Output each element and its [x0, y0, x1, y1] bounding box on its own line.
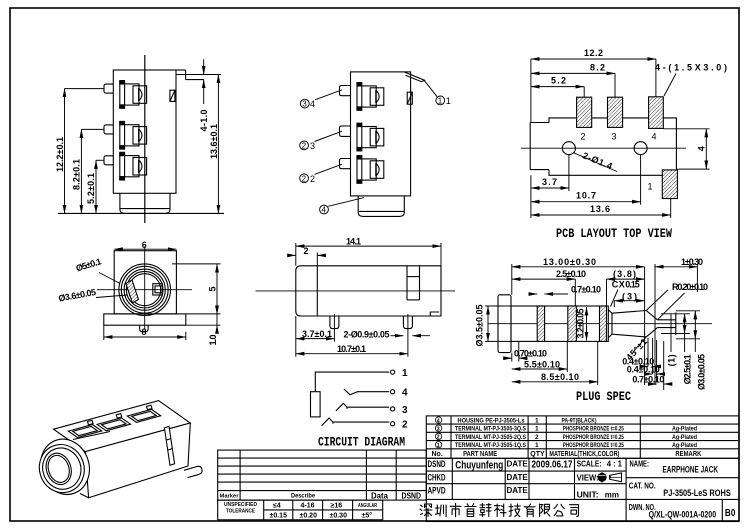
svg-text:1: 1: [402, 368, 408, 379]
svg-text:±0.30: ±0.30: [330, 512, 348, 519]
svg-text:MATERIAL(THICK,COLOR): MATERIAL(THICK,COLOR): [549, 451, 619, 458]
svg-text:1: 1: [437, 443, 440, 449]
svg-text:4: 4: [697, 146, 707, 151]
svg-text:CAT. NO.: CAT. NO.: [629, 480, 656, 490]
svg-text:(3.8): (3.8): [613, 269, 636, 279]
svg-text:2: 2: [535, 434, 539, 441]
svg-text:4: 4: [322, 206, 327, 215]
svg-text:Ø2.5±0.1: Ø2.5±0.1: [683, 354, 693, 384]
svg-text:(1): (1): [667, 354, 677, 366]
svg-text:PLUG SPEC: PLUG SPEC: [576, 389, 631, 404]
svg-text:EARPHONE JACK: EARPHONE JACK: [663, 465, 719, 475]
svg-text:UNSPECIFIED: UNSPECIFIED: [224, 502, 257, 508]
svg-text:0.7±0.10: 0.7±0.10: [632, 374, 664, 384]
svg-text:13.6±0.1: 13.6±0.1: [209, 124, 219, 159]
svg-text:13.00±0.30: 13.00±0.30: [543, 257, 596, 267]
svg-text:Describe: Describe: [291, 493, 315, 500]
svg-text:3: 3: [612, 132, 617, 142]
svg-text:DSND: DSND: [402, 490, 422, 500]
svg-text:2-Ø0.9±0.05: 2-Ø0.9±0.05: [344, 329, 390, 339]
svg-text:±5°: ±5°: [362, 511, 373, 519]
svg-text:Q/XL-QW-001A-0200: Q/XL-QW-001A-0200: [649, 510, 717, 520]
svg-text:≤4: ≤4: [273, 503, 281, 510]
svg-text:3: 3: [402, 405, 408, 416]
svg-text:5.2±0.1: 5.2±0.1: [86, 173, 96, 204]
svg-text:Marker: Marker: [220, 494, 240, 500]
svg-text:±0.15: ±0.15: [270, 512, 288, 519]
svg-text:DATE: DATE: [507, 473, 529, 482]
svg-text:2: 2: [581, 132, 586, 142]
svg-text:PCB LAYOUT TOP VIEW: PCB LAYOUT TOP VIEW: [556, 226, 672, 241]
svg-text:10.7±0.1: 10.7±0.1: [337, 344, 366, 354]
svg-text:HOUSING PE-PJ-3505-Ls: HOUSING PE-PJ-3505-Ls: [458, 418, 525, 425]
svg-text:TERMINAL MT-PJ-3505-2Q.S: TERMINAL MT-PJ-3505-2Q.S: [455, 434, 527, 441]
svg-text:C X 0.15: C X 0.15: [612, 280, 640, 290]
svg-text:Ø3.6±0.05: Ø3.6±0.05: [58, 287, 97, 303]
svg-text:8.5±0.10: 8.5±0.10: [541, 372, 579, 382]
svg-text:Ag-Plated: Ag-Plated: [672, 442, 697, 449]
svg-text:1: 1: [535, 418, 539, 425]
svg-text:0.7±0.10: 0.7±0.10: [571, 284, 601, 294]
svg-text:1: 1: [535, 426, 539, 433]
svg-text:5.5±0.10: 5.5±0.10: [524, 359, 560, 369]
svg-text:DSND: DSND: [428, 459, 446, 469]
svg-text:SCALE:: SCALE:: [577, 460, 602, 469]
svg-text:8.2±0.1: 8.2±0.1: [72, 159, 82, 190]
svg-text:4: 4: [402, 388, 408, 399]
svg-text:No.: No.: [432, 451, 443, 458]
svg-text:UNIT:: UNIT:: [577, 490, 599, 499]
svg-text:1: 1: [438, 96, 443, 105]
svg-text:4: 4: [437, 418, 441, 424]
svg-text:3: 3: [437, 427, 440, 433]
svg-text:Ag-Plated: Ag-Plated: [672, 426, 697, 433]
svg-text:0.4±0.10: 0.4±0.10: [627, 364, 660, 374]
svg-text:5.2: 5.2: [551, 76, 566, 86]
svg-text:3.7: 3.7: [542, 177, 557, 187]
svg-text:Ø3.0±0.05: Ø3.0±0.05: [697, 354, 707, 390]
svg-text:REMARK: REMARK: [675, 451, 701, 458]
svg-text:8.2: 8.2: [590, 62, 605, 72]
svg-text:4-16: 4-16: [301, 503, 315, 510]
svg-text:13.6: 13.6: [590, 204, 610, 214]
svg-text:Ø5±0.1: Ø5±0.1: [75, 256, 103, 273]
svg-text:CIRCUIT DIAGRAM: CIRCUIT DIAGRAM: [318, 435, 405, 450]
svg-text:14.1: 14.1: [346, 236, 361, 246]
svg-text:10.7: 10.7: [576, 191, 596, 201]
svg-text:2.5±0.10: 2.5±0.10: [556, 269, 586, 279]
svg-text:2: 2: [304, 246, 309, 256]
svg-text:2: 2: [302, 141, 307, 150]
svg-text:4: 4: [310, 99, 315, 109]
svg-text:6: 6: [142, 240, 147, 250]
svg-text:PHOSPHOR BRONZE t=0.25: PHOSPHOR BRONZE t=0.25: [563, 426, 624, 433]
svg-text:2: 2: [402, 420, 408, 431]
svg-text:3: 3: [310, 141, 315, 151]
svg-text:VIEW:: VIEW:: [577, 474, 599, 483]
svg-text:4-(1.5X3.0): 4-(1.5X3.0): [655, 63, 727, 73]
svg-text:PHOSPHOR BRONZE t=0.25: PHOSPHOR BRONZE t=0.25: [563, 442, 624, 449]
svg-text:2009.06.17: 2009.06.17: [532, 459, 573, 471]
svg-text:1.0: 1.0: [208, 335, 218, 346]
svg-text:PJ-3505-LeS ROHS: PJ-3505-LeS ROHS: [663, 488, 731, 498]
svg-text:4: 4: [652, 132, 657, 142]
svg-text:≥16: ≥16: [331, 503, 343, 510]
svg-text:TERMINAL MT-PJ-3505-3Q.S: TERMINAL MT-PJ-3505-3Q.S: [455, 426, 527, 433]
svg-text:4 : 1: 4 : 1: [607, 460, 623, 469]
svg-text:0.70±0.10: 0.70±0.10: [514, 348, 547, 358]
svg-text:1: 1: [446, 96, 451, 106]
svg-text:2: 2: [302, 174, 307, 183]
svg-text:(3): (3): [622, 291, 637, 301]
svg-text:TOLERANCE: TOLERANCE: [226, 509, 255, 515]
svg-text:NAME:: NAME:: [630, 458, 650, 468]
svg-text:2: 2: [437, 435, 440, 441]
svg-text:12.2±0.1: 12.2±0.1: [55, 137, 65, 172]
svg-text:mm: mm: [605, 490, 619, 499]
svg-text:DATE: DATE: [507, 460, 529, 469]
svg-text:4-1.0: 4-1.0: [199, 110, 209, 132]
svg-text:R0.20±0.10: R0.20±0.10: [672, 282, 708, 292]
svg-text:3.7±0.1: 3.7±0.1: [302, 329, 332, 339]
svg-text:APVD: APVD: [428, 486, 446, 496]
svg-text:Ag-Plated: Ag-Plated: [672, 434, 697, 441]
svg-text:8: 8: [142, 327, 147, 337]
svg-text:1: 1: [535, 442, 539, 449]
svg-text:B0: B0: [725, 508, 736, 519]
svg-text:Ø3.5±0.05: Ø3.5±0.05: [475, 305, 485, 347]
svg-text:3: 3: [302, 100, 307, 109]
svg-text:Chuyunfeng: Chuyunfeng: [455, 459, 503, 471]
svg-text:±0.20: ±0.20: [300, 512, 318, 519]
svg-text:CHKD: CHKD: [428, 473, 446, 483]
svg-text:PHOSPHOR BRONZE t=0.25: PHOSPHOR BRONZE t=0.25: [563, 434, 624, 441]
svg-text:ANGULAR: ANGULAR: [358, 503, 377, 509]
svg-text:12.2: 12.2: [584, 48, 603, 58]
svg-text:1: 1: [648, 182, 653, 192]
svg-text:TERMINAL MT-PJ-3505-1Q.S: TERMINAL MT-PJ-3505-1Q.S: [455, 442, 527, 449]
svg-text:1±0.30: 1±0.30: [681, 257, 703, 267]
svg-text:5: 5: [208, 286, 218, 291]
svg-text:2: 2: [310, 174, 315, 184]
svg-text:3.2±0.05: 3.2±0.05: [576, 309, 586, 339]
svg-text:DATE: DATE: [507, 486, 529, 495]
svg-text:PART NAME: PART NAME: [463, 451, 497, 458]
svg-text:PA-9T(BLACK): PA-9T(BLACK): [562, 418, 597, 425]
svg-text:Data: Data: [371, 490, 388, 500]
svg-text:2-Ø1.4: 2-Ø1.4: [581, 150, 613, 171]
svg-text:QTY: QTY: [530, 451, 545, 458]
